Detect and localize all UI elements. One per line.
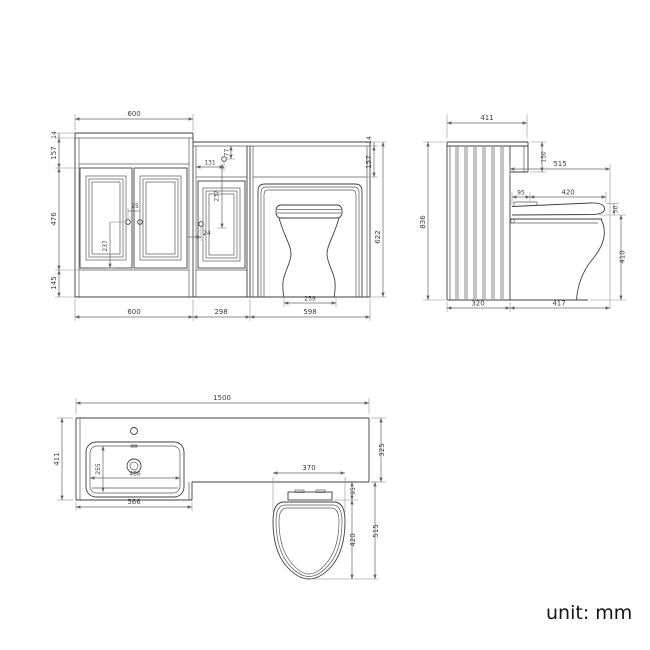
front-mid-unit	[196, 146, 253, 297]
dim-plan-seat-back: 95	[350, 487, 357, 495]
toilet-seat-front	[276, 205, 342, 218]
dim-front-total-height: 622	[374, 230, 382, 243]
side-view: 411 836 150 515 95 420	[419, 114, 627, 312]
dim-toilet-base: 259	[304, 296, 316, 303]
toilet-seat-side	[512, 203, 605, 215]
vanity-left-door	[80, 168, 132, 268]
toilet-bowl-front	[279, 218, 339, 297]
dim-front-top-width: 600	[127, 110, 140, 118]
plan-view: 1500 411 566 255 486 325	[53, 394, 386, 579]
dim-side-bowl-height: 410	[619, 250, 627, 263]
dim-plan-seat-total: 515	[372, 524, 380, 537]
toilet-side	[510, 202, 605, 300]
dim-front-frieze-right: 157	[365, 155, 373, 168]
wc-arch-frame	[258, 184, 362, 297]
front-view: 600 14 157 476 145 14 157 622	[50, 110, 387, 321]
dim-front-door-height: 476	[50, 212, 58, 226]
mid-drawer-knob	[222, 157, 227, 162]
dim-front-wc-width: 598	[303, 308, 316, 316]
dim-side-step: 150	[541, 151, 548, 163]
side-fluted-panel	[456, 147, 503, 299]
dim-front-plinth: 145	[50, 276, 58, 289]
seat-outline-outer	[273, 502, 345, 579]
dim-vanity-knob-drop: 237	[102, 240, 109, 252]
dim-plan-total-width: 1500	[213, 394, 231, 402]
waste-inner	[130, 462, 138, 470]
dim-plan-basin-depth: 255	[95, 463, 102, 475]
dim-plan-counter-depth: 325	[378, 443, 386, 456]
dim-mid-panel: 237	[214, 190, 221, 202]
fixing-detail	[511, 219, 515, 223]
dim-plan-vanity-width: 566	[127, 498, 141, 506]
dim-side-projection: 417	[552, 300, 565, 308]
vanity-left-knob	[126, 220, 131, 225]
plan-basin	[86, 428, 184, 498]
unit-note: unit: mm	[546, 602, 632, 624]
dim-front-worktop-right: 14	[366, 136, 373, 144]
dim-side-total-height: 836	[419, 215, 427, 229]
front-wc-unit	[253, 142, 370, 297]
drawing-svg: 600 14 157 476 145 14 157 622	[0, 0, 650, 650]
dim-plan-seat-length: 420	[349, 533, 357, 546]
dim-mid-knob-edge: 24	[203, 230, 211, 237]
vanity-right-door	[134, 168, 187, 268]
plan-dimensions: 1500 411 566 255 486 325	[53, 394, 386, 579]
dim-plan-basin-width: 486	[129, 471, 141, 478]
dim-plan-vanity-depth: 411	[53, 452, 61, 465]
dim-mid-knob-y: 77	[224, 149, 231, 157]
dim-side-seat-thickness: 50	[613, 206, 620, 214]
dim-side-seat-total: 515	[553, 160, 566, 168]
dim-front-vanity-width: 600	[127, 308, 140, 316]
dim-side-seat-length: 420	[561, 189, 574, 197]
front-vanity-unit	[75, 133, 193, 297]
toilet-front	[276, 205, 342, 297]
dim-front-frieze-left: 157	[50, 146, 58, 159]
dim-front-mid-width: 298	[214, 308, 227, 316]
technical-drawing-page: 600 14 157 476 145 14 157 622	[0, 0, 650, 650]
tap-hole	[131, 428, 138, 435]
side-cabinet	[447, 142, 528, 300]
seat-hinge-bar	[288, 492, 332, 500]
toilet-bowl-side	[577, 219, 605, 300]
dim-side-seat-back: 95	[517, 190, 525, 197]
dim-side-cabinet-depth: 320	[471, 300, 484, 308]
mid-door-knob	[199, 222, 204, 227]
dim-vanity-knob-gap: 25	[131, 203, 139, 210]
dim-front-worktop-left: 14	[51, 131, 58, 139]
dim-mid-knob-x: 131	[204, 160, 216, 167]
dim-side-worktop-depth: 411	[480, 114, 493, 122]
basin-inner-rim	[90, 446, 180, 493]
plan-toilet-seat	[273, 490, 345, 579]
dim-plan-seat-width: 370	[302, 464, 315, 472]
